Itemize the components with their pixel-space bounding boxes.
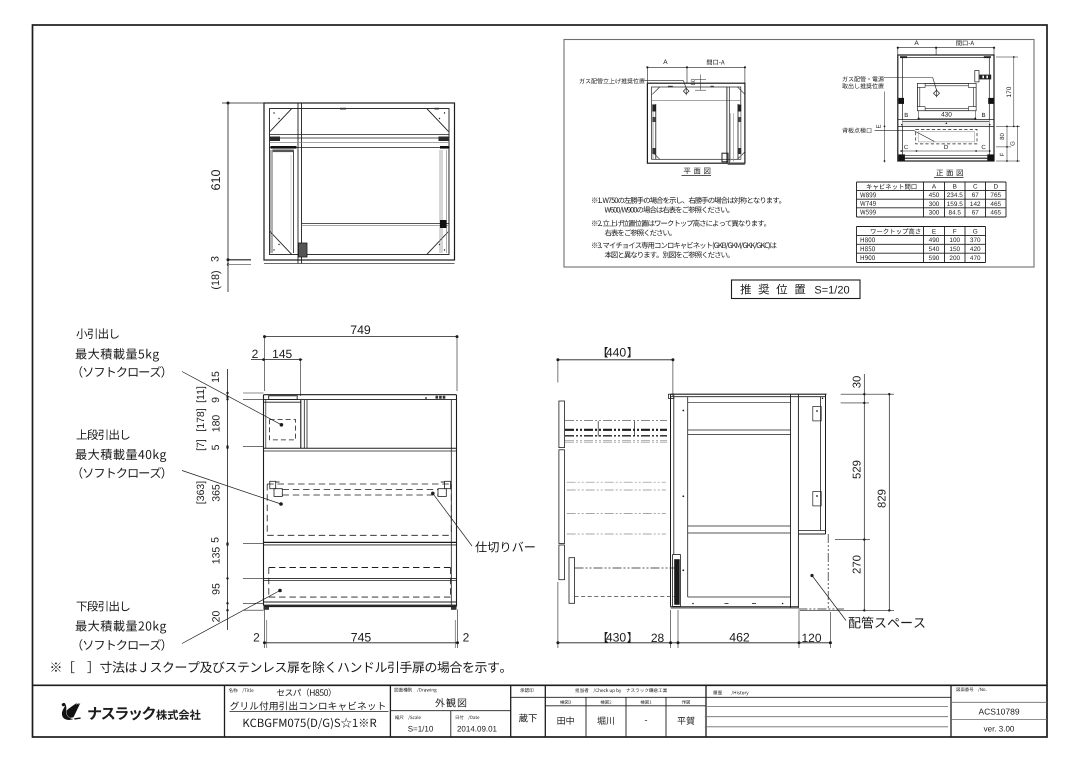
svg-text:5: 5: [210, 444, 222, 450]
svg-text:270: 270: [852, 555, 864, 574]
svg-text:67: 67: [972, 209, 980, 216]
svg-text:G: G: [1010, 141, 1017, 146]
svg-text:610: 610: [209, 169, 223, 190]
svg-text:28: 28: [651, 631, 665, 645]
svg-text:470: 470: [970, 255, 981, 262]
svg-text:[363]: [363]: [195, 481, 207, 504]
svg-text:C: C: [981, 144, 986, 151]
svg-text:G: G: [973, 228, 978, 235]
svg-text:3: 3: [210, 256, 222, 262]
svg-text:170: 170: [1006, 86, 1013, 97]
svg-text:[11]: [11]: [195, 386, 207, 403]
svg-text:440: 440: [606, 346, 627, 360]
svg-text:ACS10789: ACS10789: [978, 707, 1019, 717]
svg-text:F: F: [999, 152, 1006, 156]
svg-text:120: 120: [801, 631, 821, 645]
svg-text:[7]: [7]: [195, 439, 207, 451]
svg-text:829: 829: [877, 489, 889, 508]
svg-text:365: 365: [211, 484, 223, 502]
svg-text:30: 30: [852, 376, 864, 389]
svg-text:2: 2: [252, 347, 259, 361]
svg-text:E: E: [932, 228, 936, 235]
svg-text:-: -: [645, 715, 648, 725]
svg-text:450: 450: [929, 192, 940, 199]
svg-text:ver. 3.00: ver. 3.00: [984, 725, 1015, 734]
svg-text:80: 80: [690, 78, 697, 85]
svg-text:590: 590: [929, 255, 940, 262]
svg-text:A: A: [932, 184, 937, 191]
svg-text:420: 420: [970, 246, 981, 253]
svg-text:[178]: [178]: [195, 408, 207, 431]
svg-text:95: 95: [211, 583, 223, 595]
svg-text:67: 67: [972, 192, 980, 199]
svg-text:2: 2: [253, 631, 260, 645]
svg-text:462: 462: [729, 631, 750, 645]
svg-text:B: B: [904, 112, 908, 119]
svg-text:E: E: [876, 124, 883, 128]
svg-text:D: D: [944, 144, 949, 151]
svg-text:D: D: [993, 184, 998, 191]
svg-text:A: A: [663, 59, 668, 66]
svg-text:C: C: [904, 144, 909, 151]
svg-text:15: 15: [210, 371, 222, 383]
svg-text:430: 430: [606, 631, 627, 645]
svg-text:5: 5: [210, 537, 222, 543]
svg-text:490: 490: [929, 237, 940, 244]
svg-text:234.5: 234.5: [947, 192, 963, 199]
svg-text:465: 465: [990, 201, 1001, 208]
svg-text:529: 529: [852, 460, 864, 479]
svg-text:300: 300: [929, 209, 940, 216]
svg-text:C: C: [973, 184, 978, 191]
svg-text:300: 300: [929, 201, 940, 208]
svg-text:B: B: [981, 112, 985, 119]
svg-text:20: 20: [211, 611, 223, 623]
svg-text:159.5: 159.5: [947, 201, 963, 208]
svg-text:745: 745: [351, 631, 372, 645]
svg-text:430: 430: [941, 111, 952, 118]
svg-text:B: B: [953, 184, 957, 191]
svg-text:200: 200: [949, 255, 960, 262]
svg-text:540: 540: [929, 246, 940, 253]
svg-text:142: 142: [970, 201, 981, 208]
svg-text:S=1/10: S=1/10: [408, 725, 434, 734]
svg-text:749: 749: [350, 323, 371, 337]
svg-text:150: 150: [949, 246, 960, 253]
svg-text:2014.09.01: 2014.09.01: [457, 725, 498, 734]
svg-text:180: 180: [211, 415, 223, 433]
svg-text:765: 765: [990, 192, 1001, 199]
svg-text:465: 465: [990, 209, 1001, 216]
svg-text:(18): (18): [210, 270, 222, 289]
svg-text:145: 145: [272, 347, 292, 361]
svg-text:84.5: 84.5: [949, 209, 962, 216]
svg-text:135: 135: [211, 547, 223, 565]
svg-text:100: 100: [949, 237, 960, 244]
svg-text:S=1/20: S=1/20: [814, 285, 849, 297]
svg-text:9: 9: [210, 397, 222, 403]
svg-text:80: 80: [999, 133, 1006, 140]
svg-text:F: F: [953, 228, 957, 235]
svg-text:2: 2: [463, 631, 470, 645]
svg-text:370: 370: [970, 237, 981, 244]
svg-text:A: A: [914, 40, 919, 47]
